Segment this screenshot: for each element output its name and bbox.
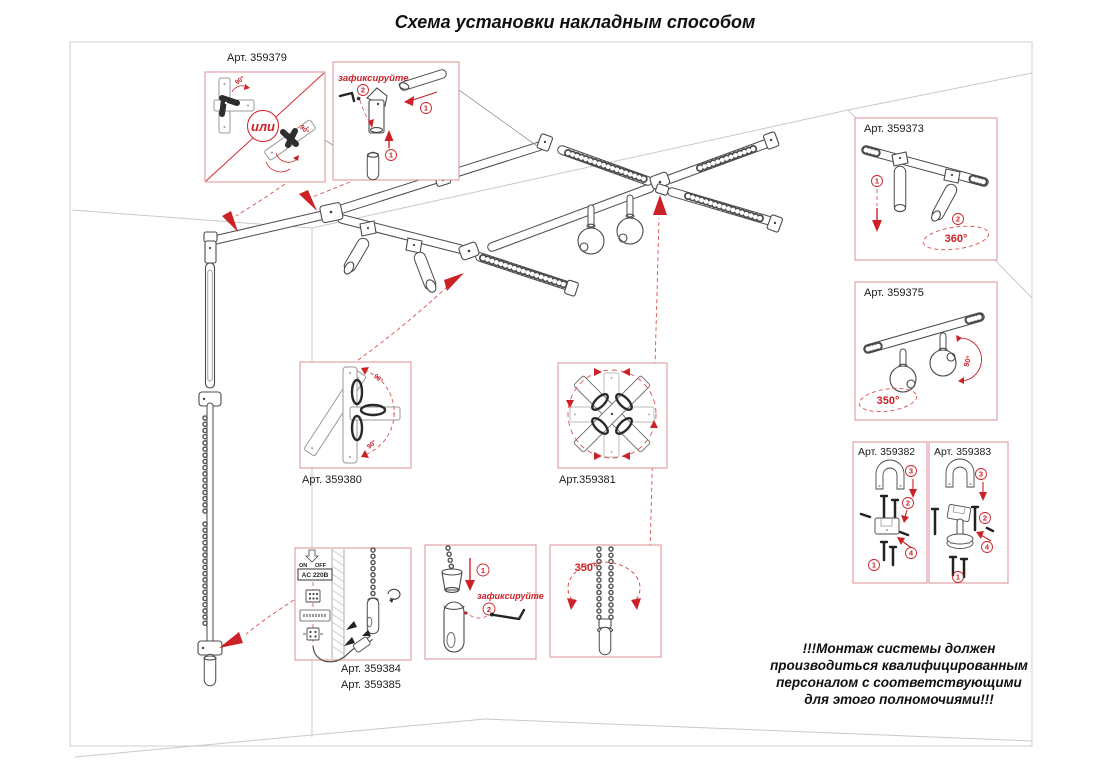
chain-bar-right [480,257,579,297]
callout-art-359381 [558,363,667,468]
callout-box [855,118,997,260]
fixation-caption: зафиксируйте [338,73,409,84]
or-label: или [251,119,275,134]
callout-fixation-top: зафиксируйте 2 1 1 [333,62,459,180]
svg-text:2: 2 [361,86,365,95]
corner-pole [198,232,222,680]
label-art-359381: Арт.359381 [559,474,616,486]
warning-line: производиться квалифицированным [756,657,1042,674]
warning-line: !!!Монтаж системы должен [756,640,1042,657]
callout-fixation-bottom: 1 зафиксируйте 2 [425,545,544,659]
svg-text:1: 1 [481,566,485,575]
svg-text:1: 1 [956,573,960,582]
svg-text:2: 2 [956,215,960,224]
label-art-359380: Арт. 359380 [302,474,362,486]
svg-text:3: 3 [979,470,983,479]
svg-text:1: 1 [424,104,428,113]
svg-text:2: 2 [487,605,491,614]
callout-chain-rotation: 350° [550,545,661,657]
connector-block-icon [306,590,320,602]
svg-text:2: 2 [906,499,910,508]
svg-text:1: 1 [389,151,393,160]
label-art-359379: Арт. 359379 [227,52,287,64]
warning-line: персоналом с соответствующими [756,674,1042,691]
ball-pendant-2 [617,198,643,244]
callout-power-switch: ON OFF AC 220В [295,548,411,662]
on-label: ON [299,563,307,569]
label-art-359375: Арт. 359375 [864,287,924,299]
installation-warning: !!!Монтаж системы должен производиться к… [756,640,1042,708]
corner-connector [319,202,343,223]
callout-art-359383: 3 2 4 1 [929,442,1008,583]
label-art-359373: Арт. 359373 [864,123,924,135]
callout-box [425,545,536,659]
callout-art-359380: 90° 90° [300,362,411,468]
installation-scheme-page: Схема установки накладным способом [0,0,1102,778]
svg-text:3: 3 [909,467,913,476]
callout-art-359375: 90° 350° [855,282,997,420]
rotation-label: 350° [877,395,900,407]
voltage-label: AC 220В [302,572,329,579]
label-art-359383: Арт. 359383 [934,446,991,458]
rotation-label: 350° [575,562,598,574]
callout-art-359379: 90° 90° или [205,72,325,182]
fixation-caption: зафиксируйте [477,591,544,601]
rotation-label: 360° [945,233,968,245]
callout-art-359373: 1 2 360° [855,118,997,260]
warning-line: для этого полномочиями!!! [756,691,1042,708]
connector-block-icon [307,628,319,640]
spotlight-1 [342,221,376,276]
label-art-359384: Арт. 359384 [341,663,401,675]
off-label: OFF [315,563,327,569]
svg-text:1: 1 [872,561,876,570]
label-art-359385: Арт. 359385 [341,679,401,691]
callout-art-359382: 3 2 4 1 [853,442,927,583]
svg-text:1: 1 [875,177,879,186]
svg-text:2: 2 [983,514,987,523]
label-art-359382: Арт. 359382 [858,446,915,458]
